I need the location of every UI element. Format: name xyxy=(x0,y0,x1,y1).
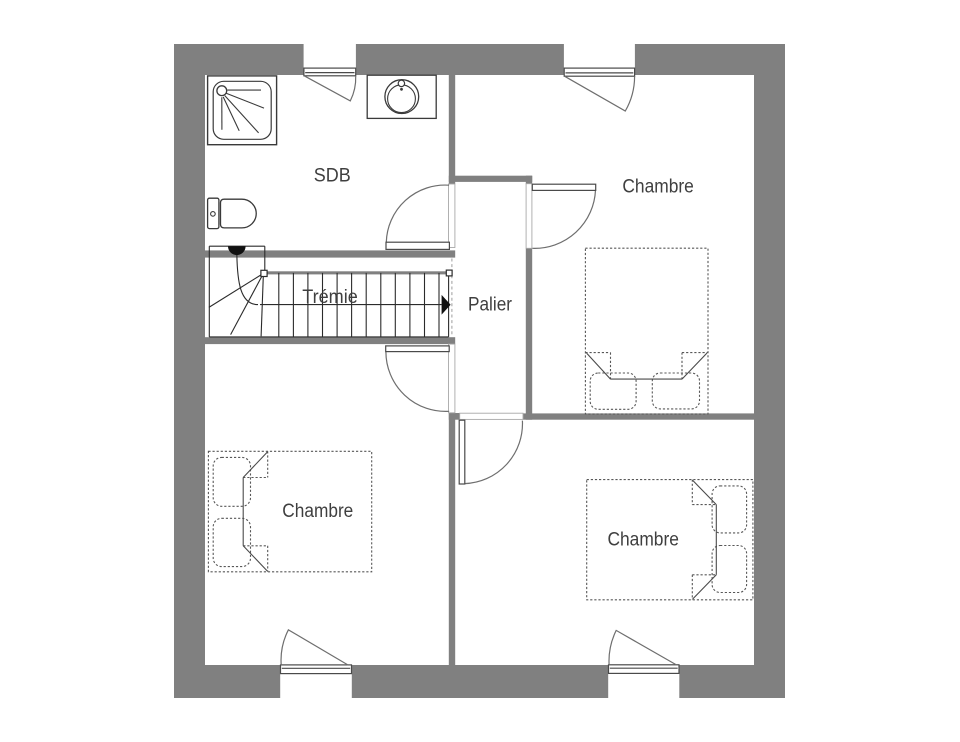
svg-text:Trémie: Trémie xyxy=(302,287,358,308)
svg-text:Chambre: Chambre xyxy=(607,529,679,550)
svg-text:Palier: Palier xyxy=(468,295,513,316)
svg-text:SDB: SDB xyxy=(314,166,351,187)
svg-text:Chambre: Chambre xyxy=(622,176,694,197)
svg-text:Chambre: Chambre xyxy=(282,501,353,522)
